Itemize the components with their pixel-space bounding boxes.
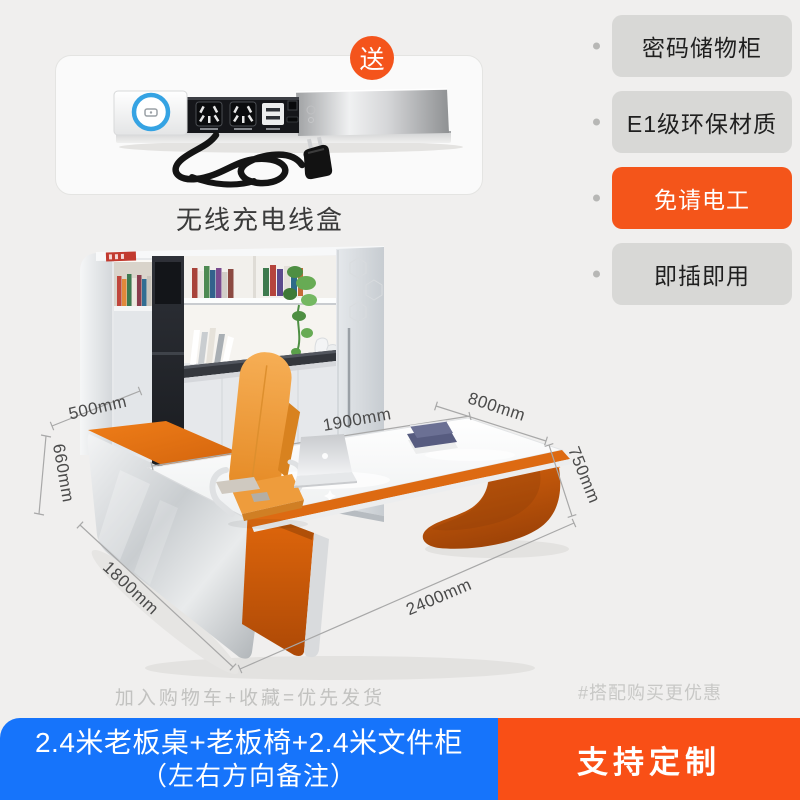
product-promo-image: 送 无线充电线盒 密码储物柜 E1级环保材质 免请电工 即插即用 xyxy=(0,0,800,800)
power-socket-icon xyxy=(230,102,256,130)
customize-banner: 支持定制 xyxy=(498,718,800,800)
power-socket-icon xyxy=(196,102,222,130)
slide-cover xyxy=(296,89,449,136)
promo-text-right: #搭配购买更优惠 xyxy=(540,679,760,705)
power-strip-image xyxy=(96,73,466,213)
gift-card: 送 xyxy=(55,55,483,195)
bullet-dot-icon xyxy=(593,43,600,50)
outlet-module xyxy=(187,97,299,133)
desk-scene-image: 500mm 1900mm 800mm 660mm 750mm 1800mm 24… xyxy=(20,235,605,680)
dim-label-800: 800mm xyxy=(466,389,528,425)
feature-label: 免请电工 xyxy=(654,181,750,215)
customize-label: 支持定制 xyxy=(577,737,721,782)
bullet-dot-icon xyxy=(593,195,600,202)
dim-label-2400: 2400mm xyxy=(403,575,474,620)
cabinet-logo xyxy=(106,251,136,261)
bundle-note: （左右方向备注） xyxy=(141,762,357,791)
wireless-charger-pad xyxy=(114,91,187,135)
feature-badge: E1级环保材质 xyxy=(612,91,792,153)
bullet-dot-icon xyxy=(593,119,600,126)
dim-label-660: 660mm xyxy=(49,442,78,504)
dim-label-750: 750mm xyxy=(564,444,604,506)
network-port-icon xyxy=(288,101,297,110)
hdmi-port-icon xyxy=(287,117,298,122)
promo-text-left: 加入购物车+收藏=优先发货 xyxy=(60,683,440,710)
feature-label: 即插即用 xyxy=(654,257,750,291)
gift-badge: 送 xyxy=(350,36,394,80)
feature-badge: 密码储物柜 xyxy=(612,15,792,77)
bundle-title: 2.4米老板桌+老板椅+2.4米文件柜 xyxy=(35,728,463,759)
bottom-banner: 2.4米老板桌+老板椅+2.4米文件柜 （左右方向备注） 支持定制 xyxy=(0,718,800,800)
feature-badge-highlighted: 免请电工 xyxy=(612,167,792,229)
feature-label: E1级环保材质 xyxy=(627,105,777,139)
feature-label: 密码储物柜 xyxy=(642,29,762,63)
bundle-banner: 2.4米老板桌+老板椅+2.4米文件柜 （左右方向备注） xyxy=(0,718,498,800)
feature-badge: 即插即用 xyxy=(612,243,792,305)
